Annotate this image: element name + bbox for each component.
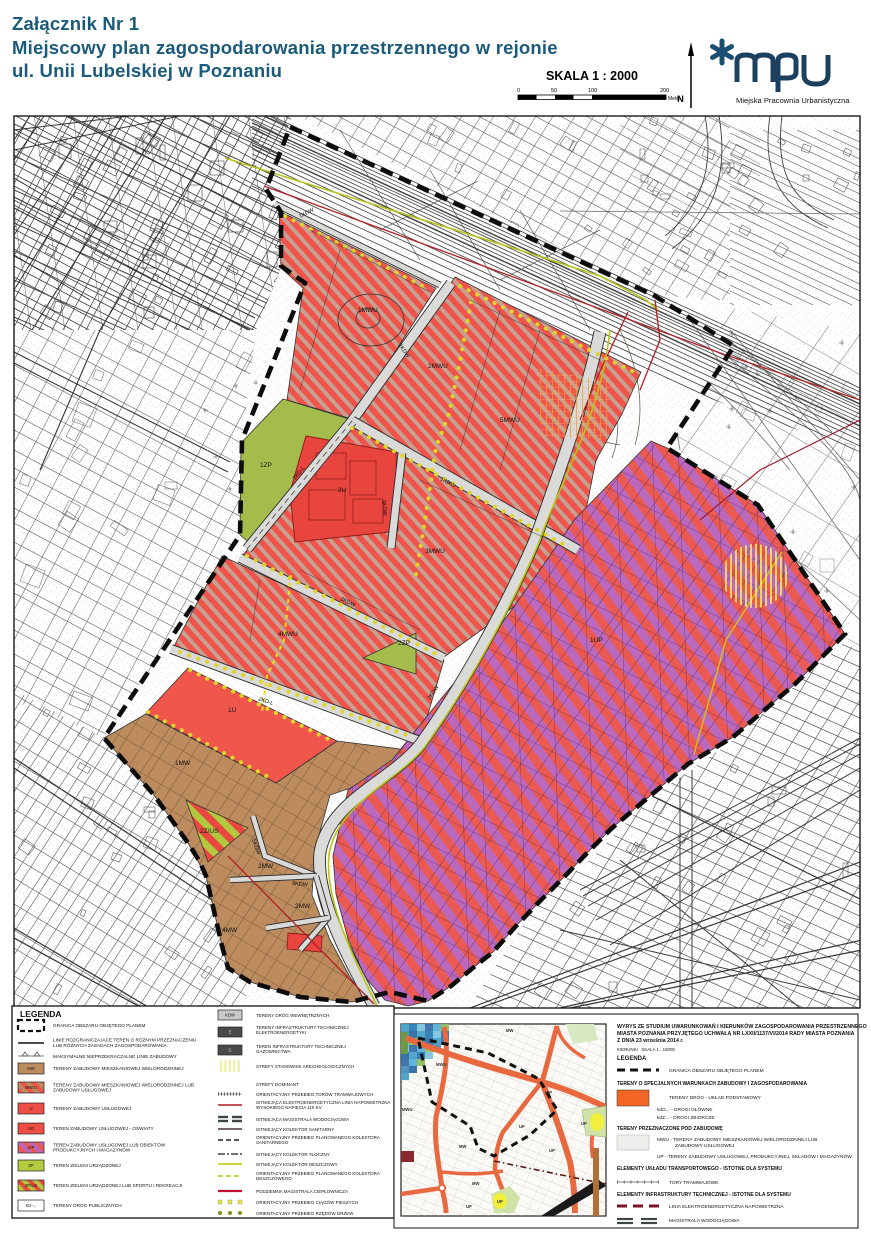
svg-text:TORY TRAMWAJOWE: TORY TRAMWAJOWE xyxy=(669,1180,718,1186)
svg-text:UP: UP xyxy=(549,1148,555,1153)
svg-text:E: E xyxy=(229,1030,232,1035)
svg-text:MAKSYMALNE NIEPRZEKRACZALNE LI: MAKSYMALNE NIEPRZEKRACZALNE LINIE ZABUDO… xyxy=(53,1054,178,1059)
svg-text:TERENY PRZEZNACZONE POD ZABUDO: TERENY PRZEZNACZONE POD ZABUDOWĘ xyxy=(617,1126,723,1132)
svg-text:Z DNIA 23 września 2014 r.: Z DNIA 23 września 2014 r. xyxy=(617,1038,684,1044)
svg-text:ELEMENTY INFRASTRUKTURY TECHNI: ELEMENTY INFRASTRUKTURY TECHNICZNEJ - IS… xyxy=(617,1192,791,1198)
svg-text:TERENY O SPECJALNYCH WARUNKACH: TERENY O SPECJALNYCH WARUNKACH ZABUDOWY … xyxy=(617,1081,807,1087)
svg-text:MIASTA POZNANIA PRZYJĘTEGO UCH: MIASTA POZNANIA PRZYJĘTEGO UCHWAŁĄ NR LX… xyxy=(617,1031,855,1037)
svg-text:KIERUNKI SKALA 1 : 15000: KIERUNKI SKALA 1 : 15000 xyxy=(617,1047,675,1052)
svg-text:G: G xyxy=(228,1048,231,1053)
svg-text:GAZOWNICTWA: GAZOWNICTWA xyxy=(256,1049,291,1054)
svg-text:MW: MW xyxy=(472,1181,479,1186)
svg-text:TEREN ZIELENI URZĄDZONEJ LUB S: TEREN ZIELENI URZĄDZONEJ LUB SPORTU I RE… xyxy=(53,1183,182,1188)
svg-text:MW: MW xyxy=(459,1144,466,1149)
svg-text:ZABUDOWY USŁUGOWEJ: ZABUDOWY USŁUGOWEJ xyxy=(675,1143,735,1149)
svg-text:TERENY DRÓG - UKŁAD PODSTAWOWY: TERENY DRÓG - UKŁAD PODSTAWOWY xyxy=(669,1094,762,1101)
svg-text:UP: UP xyxy=(519,1124,525,1129)
svg-text:TERENY ZABUDOWY USŁUGOWEJ: TERENY ZABUDOWY USŁUGOWEJ xyxy=(53,1106,131,1111)
svg-text:ZP: ZP xyxy=(28,1163,34,1168)
svg-text:WYSOKIEGO NAPIĘCIA 110 KV: WYSOKIEGO NAPIĘCIA 110 KV xyxy=(256,1105,322,1110)
svg-text:LEGENDA: LEGENDA xyxy=(617,1056,647,1062)
svg-text:TERENY DRÓG WEWNĘTRZNYCH: TERENY DRÓG WEWNĘTRZNYCH xyxy=(256,1012,329,1018)
svg-text:UP: UP xyxy=(466,1204,472,1209)
svg-text:MW/U: MW/U xyxy=(25,1085,37,1090)
svg-text:U: U xyxy=(29,1106,32,1111)
svg-text:ISTNIEJĄCA MAGISTRALA WODOCIĄG: ISTNIEJĄCA MAGISTRALA WODOCIĄGOWA xyxy=(256,1117,349,1122)
svg-text:MWU: MWU xyxy=(402,1107,412,1112)
svg-text:LEGENDA: LEGENDA xyxy=(20,1009,62,1019)
svg-text:MW: MW xyxy=(27,1066,34,1071)
svg-text:STREFY STANOWISK ARECHEOLOGICZ: STREFY STANOWISK ARECHEOLOGICZNYCH xyxy=(256,1064,354,1069)
svg-text:ZP/US: ZP/US xyxy=(25,1183,38,1188)
svg-text:ISTNIEJĄCY KOLEKTOR SANITARNY: ISTNIEJĄCY KOLEKTOR SANITARNY xyxy=(256,1127,334,1132)
svg-text:UP: UP xyxy=(497,1199,503,1204)
svg-text:GRANICA OBSZARU OBJĘTEGO PLANE: GRANICA OBSZARU OBJĘTEGO PLANEM xyxy=(669,1068,764,1074)
svg-text:SANITARNEGO: SANITARNEGO xyxy=(256,1140,289,1145)
svg-text:ZABUDOWY USŁUGOWEJ: ZABUDOWY USŁUGOWEJ xyxy=(53,1088,111,1093)
svg-text:UO: UO xyxy=(28,1126,35,1131)
svg-text:KD-...: KD-... xyxy=(26,1203,37,1208)
svg-text:TEREN ZABUDOWY USŁUGOWEJ LUB O: TEREN ZABUDOWY USŁUGOWEJ LUB OBIEKTÓW xyxy=(53,1141,166,1147)
svg-text:ORIENTACYJNY PRZEBIEG CIĄGÓW P: ORIENTACYJNY PRZEBIEG CIĄGÓW PIESZYCH xyxy=(256,1199,358,1205)
svg-text:LUB RÓŻNYCH ZASADACH ZAGOSPODA: LUB RÓŻNYCH ZASADACH ZAGOSPODAROWANIA xyxy=(53,1042,168,1048)
svg-text:kdG... - DROGI GŁÓWNE: kdG... - DROGI GŁÓWNE xyxy=(657,1106,712,1113)
svg-text:KDW: KDW xyxy=(225,1013,235,1018)
svg-text:MWU - TERENY ZABUDOWY MIESZKAN: MWU - TERENY ZABUDOWY MIESZKANIOWEJ WIEL… xyxy=(657,1137,817,1143)
svg-text:ELEMENTY UKŁADU TRANSPORTOWEGO: ELEMENTY UKŁADU TRANSPORTOWEGO - ISTOTNE… xyxy=(617,1166,782,1172)
svg-text:UP - TERENY ZABUDOWY USŁUGOWEJ: UP - TERENY ZABUDOWY USŁUGOWEJ, PRODUKCY… xyxy=(657,1153,852,1160)
svg-text:WYRYS ZE STUDIUM UWARUNKOWAŃ I: WYRYS ZE STUDIUM UWARUNKOWAŃ I KIERUNKÓW… xyxy=(617,1022,867,1030)
svg-text:MWU: MWU xyxy=(436,1062,446,1067)
svg-text:TEREN ZIELENI URZĄDZONEJ: TEREN ZIELENI URZĄDZONEJ xyxy=(53,1163,121,1168)
svg-text:ISTNIEJĄCY KOLEKTOR TŁOCZNY: ISTNIEJĄCY KOLEKTOR TŁOCZNY xyxy=(256,1152,330,1157)
svg-text:PRODUKCYJNYCH I MAGAZYNÓW: PRODUKCYJNYCH I MAGAZYNÓW xyxy=(53,1147,131,1153)
svg-text:U/P: U/P xyxy=(28,1145,35,1150)
svg-text:DESZCZOWEGO: DESZCZOWEGO xyxy=(256,1176,292,1181)
svg-text:TERENY DRÓG PUBLICZNYCH: TERENY DRÓG PUBLICZNYCH xyxy=(53,1202,122,1208)
svg-text:TEREN ZABUDOWY USŁUGOWEJ - OŚW: TEREN ZABUDOWY USŁUGOWEJ - OŚWIATY xyxy=(53,1124,154,1131)
svg-text:kdZ... - DROGI ZBIORCZE: kdZ... - DROGI ZBIORCZE xyxy=(657,1115,715,1121)
svg-text:MAGISTRALA WODOCIĄGOWA: MAGISTRALA WODOCIĄGOWA xyxy=(669,1218,740,1224)
svg-text:MW: MW xyxy=(506,1028,513,1033)
svg-text:TERENY ZABUDOWY MIESZKANIOWEJ: TERENY ZABUDOWY MIESZKANIOWEJ WIELORODZI… xyxy=(53,1082,194,1087)
svg-text:ORIENTACYJNY PRZEBIEG TORÓW TR: ORIENTACYJNY PRZEBIEG TORÓW TRAMWAJOWYCH xyxy=(256,1091,373,1097)
svg-text:ELEKTROENERGETYKI: ELEKTROENERGETYKI xyxy=(256,1030,306,1035)
svg-text:STREFY DOMINANT: STREFY DOMINANT xyxy=(256,1082,299,1087)
svg-text:LINIE ROZGRANICZAJĄCE TEREN O: LINIE ROZGRANICZAJĄCE TEREN O RÓŻNYM PRZ… xyxy=(53,1037,197,1043)
svg-text:LINIA ELEKTROENERGETYCZNA NAPO: LINIA ELEKTROENERGETYCZNA NAPOWIETRZNA xyxy=(669,1204,784,1210)
svg-text:U/P: U/P xyxy=(545,1090,552,1095)
svg-text:TERENY ZABUDOWY MIESZKANIOWEJ: TERENY ZABUDOWY MIESZKANIOWEJ WIELORODZI… xyxy=(53,1066,184,1071)
svg-text:UP: UP xyxy=(581,1121,587,1126)
svg-text:ISTNIEJĄCY KOLEKTOR DESZCZOWY: ISTNIEJĄCY KOLEKTOR DESZCZOWY xyxy=(256,1162,338,1167)
svg-text:GRANICA OBSZARU OBJĘTEGO PLANE: GRANICA OBSZARU OBJĘTEGO PLANEM xyxy=(53,1023,146,1028)
svg-text:PODZIEMNA MAGISTRALA CIEPŁOWNI: PODZIEMNA MAGISTRALA CIEPŁOWNICZA xyxy=(256,1189,348,1194)
svg-text:ORIENTACYJNY PRZEBIEG RZĘDÓW D: ORIENTACYJNY PRZEBIEG RZĘDÓW DRZEW xyxy=(256,1210,354,1216)
